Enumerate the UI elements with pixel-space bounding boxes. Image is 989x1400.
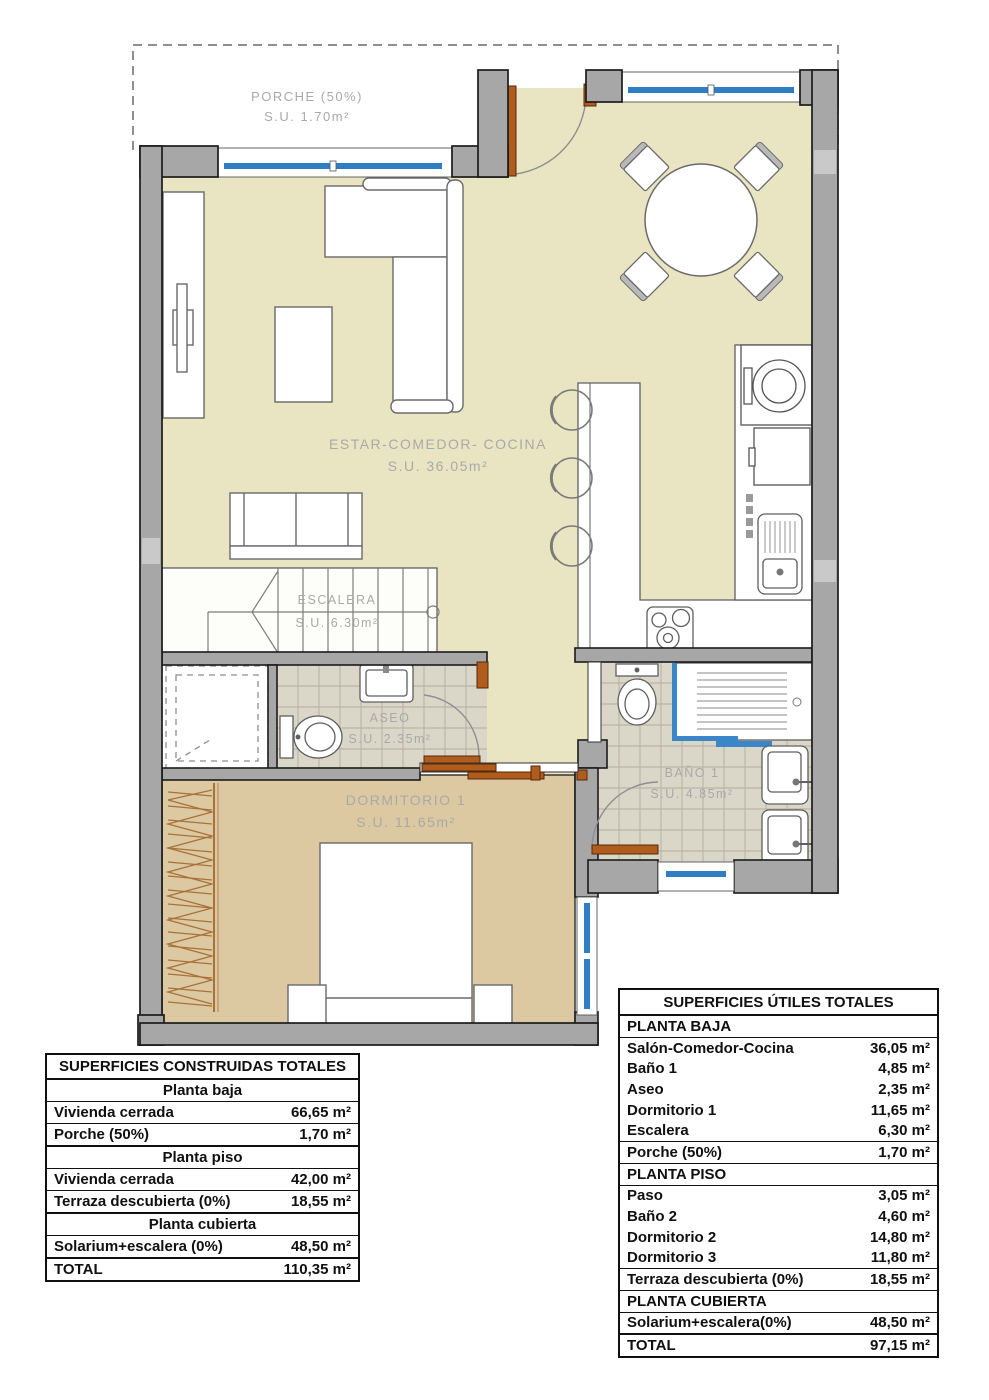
washing-machine [741,345,812,425]
label-escalera-area: S.U. 6.30m² [295,616,378,630]
table-row: Terraza descubierta (0%)18,55 m² [620,1268,937,1290]
under-stair-storage [166,666,268,770]
built-areas-table: SUPERFICIES CONSTRUIDAS TOTALES Planta b… [45,1053,360,1282]
tv-unit [163,192,204,418]
bano-door-pocket [588,662,601,742]
table-row: Solarium+escalera(0%)48,50 m² [620,1312,937,1334]
table-row: Planta piso [47,1145,358,1168]
label-estar: ESTAR-COMEDOR- COCINA [329,436,547,452]
fridge [749,428,810,485]
table-row: Dormitorio 214,80 m² [620,1227,937,1248]
table-row: Porche (50%)1,70 m² [620,1141,937,1163]
label-aseo-area: S.U. 2.35m² [348,732,431,746]
table-row: Terraza descubierta (0%)18,55 m² [47,1190,358,1212]
living-window [218,148,452,177]
table-row: Aseo2,35 m² [620,1079,937,1100]
label-aseo: ASEO [370,711,411,725]
table-row: TOTAL110,35 m² [47,1257,358,1280]
table-row: Planta baja [47,1080,358,1101]
label-porche-area: S.U. 1.70m² [264,109,350,124]
table-row: Porche (50%)1,70 m² [47,1123,358,1145]
floorplan-page: PORCHE (50%) S.U. 1.70m² ESTAR-COMEDOR- … [0,0,989,1400]
label-dormitorio: DORMITORIO 1 [346,792,466,808]
table-row: Planta cubierta [47,1212,358,1235]
table-row: Solarium+escalera (0%)48,50 m² [47,1235,358,1257]
useful-table-title: SUPERFICIES ÚTILES TOTALES [620,990,937,1016]
label-escalera: ESCALERA [298,593,377,607]
table-row: Baño 24,60 m² [620,1206,937,1227]
table-row: Baño 14,85 m² [620,1058,937,1079]
label-bano: BAÑO 1 [665,766,720,780]
table-row: Escalera6,30 m² [620,1120,937,1141]
table-row: Dormitorio 311,80 m² [620,1248,937,1269]
table-row: Salón-Comedor-Cocina36,05 m² [620,1037,937,1059]
aseo-sink [360,661,413,702]
bed [320,843,472,1025]
shower [672,663,812,747]
label-porche: PORCHE (50%) [251,89,363,104]
table-row: Paso3,05 m² [620,1185,937,1207]
table-row: Dormitorio 111,65 m² [620,1100,937,1121]
table-row: PLANTA CUBIERTA [620,1290,937,1312]
useful-areas-table: SUPERFICIES ÚTILES TOTALES PLANTA BAJA S… [618,988,939,1358]
bedroom-window [577,897,597,1015]
stairs [162,568,439,655]
label-estar-area: S.U. 36.05m² [388,458,488,474]
table-row: TOTAL97,15 m² [620,1333,937,1356]
coffee-table [275,307,332,402]
label-dormitorio-area: S.U. 11.65m² [356,814,455,830]
table-row: PLANTA BAJA [620,1016,937,1037]
dining-window [622,72,800,102]
kitchen-sink [758,514,802,594]
aseo-toilet [280,716,342,758]
bano-toilet [616,664,658,725]
table-row: Vivienda cerrada42,00 m² [47,1168,358,1190]
cooktop [647,607,693,653]
bano-door [592,845,658,854]
table-row: PLANTA PISO [620,1163,937,1185]
nightstand [288,985,326,1025]
label-bano-area: S.U. 4.85m² [650,787,733,801]
built-table-title: SUPERFICIES CONSTRUIDAS TOTALES [47,1055,358,1080]
table-row: Vivienda cerrada66,65 m² [47,1101,358,1123]
nightstand [474,985,512,1025]
bano-window [658,862,734,891]
sofa [230,493,362,559]
